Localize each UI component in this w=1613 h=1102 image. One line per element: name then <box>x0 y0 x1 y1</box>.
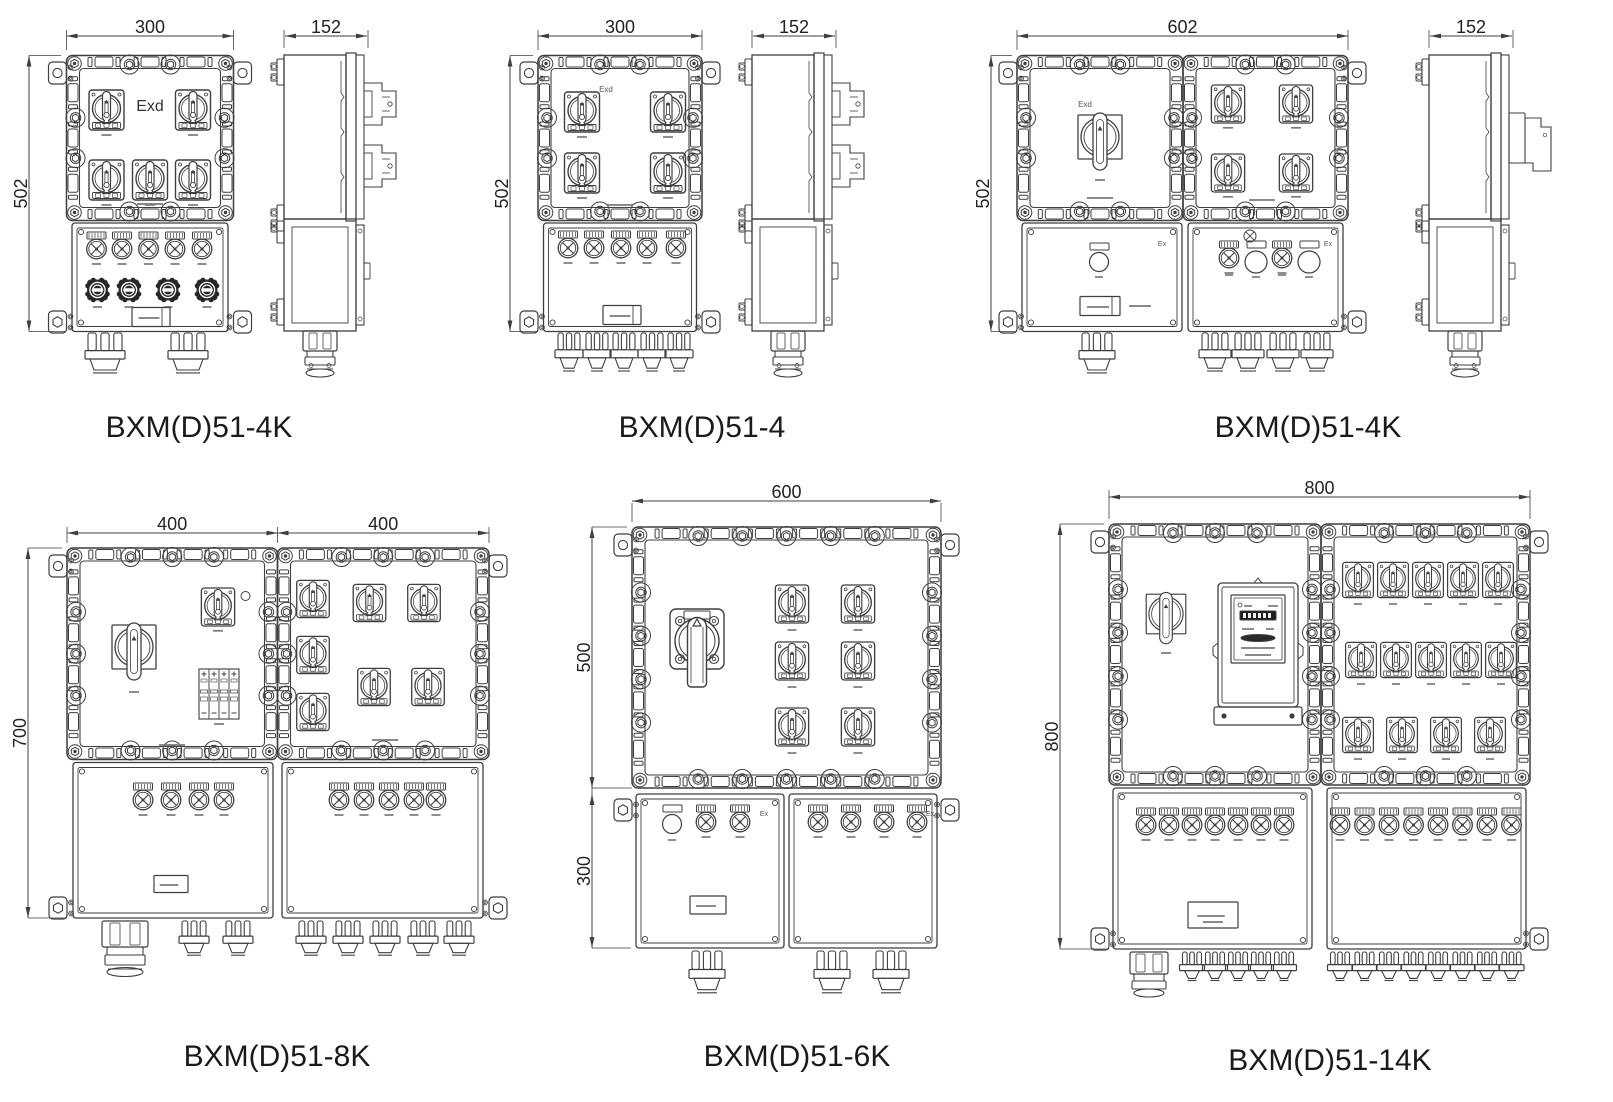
svg-text:300: 300 <box>574 856 594 886</box>
svg-text:Exd: Exd <box>599 85 613 94</box>
svg-text:BXM(D)51-4: BXM(D)51-4 <box>619 411 786 444</box>
svg-text:BXM(D)51-14K: BXM(D)51-14K <box>1228 1044 1431 1077</box>
svg-text:Exd: Exd <box>1078 100 1092 109</box>
svg-text:502: 502 <box>11 178 31 208</box>
svg-text:300: 300 <box>605 17 635 37</box>
svg-text:400: 400 <box>157 514 187 534</box>
svg-text:700: 700 <box>10 718 30 748</box>
svg-text:152: 152 <box>311 17 341 37</box>
svg-text:600: 600 <box>771 482 801 502</box>
svg-text:152: 152 <box>779 17 809 37</box>
svg-text:Ex: Ex <box>760 811 769 818</box>
svg-text:400: 400 <box>368 514 398 534</box>
svg-text:BXM(D)51-6K: BXM(D)51-6K <box>704 1040 891 1073</box>
svg-text:152: 152 <box>1456 17 1486 37</box>
svg-text:Ex: Ex <box>1158 241 1167 248</box>
svg-text:502: 502 <box>973 178 993 208</box>
svg-text:BXM(D)51-8K: BXM(D)51-8K <box>184 1040 371 1073</box>
svg-text:502: 502 <box>492 178 512 208</box>
svg-text:800: 800 <box>1304 478 1334 498</box>
svg-text:602: 602 <box>1167 17 1197 37</box>
svg-text:800: 800 <box>1042 721 1062 751</box>
svg-text:Exd: Exd <box>136 98 164 115</box>
svg-text:BXM(D)51-4K: BXM(D)51-4K <box>1215 411 1402 444</box>
svg-text:BXM(D)51-4K: BXM(D)51-4K <box>106 411 293 444</box>
svg-text:Ex: Ex <box>1324 241 1333 248</box>
svg-text:Ex: Ex <box>926 811 935 818</box>
svg-text:300: 300 <box>135 17 165 37</box>
svg-text:500: 500 <box>574 642 594 672</box>
